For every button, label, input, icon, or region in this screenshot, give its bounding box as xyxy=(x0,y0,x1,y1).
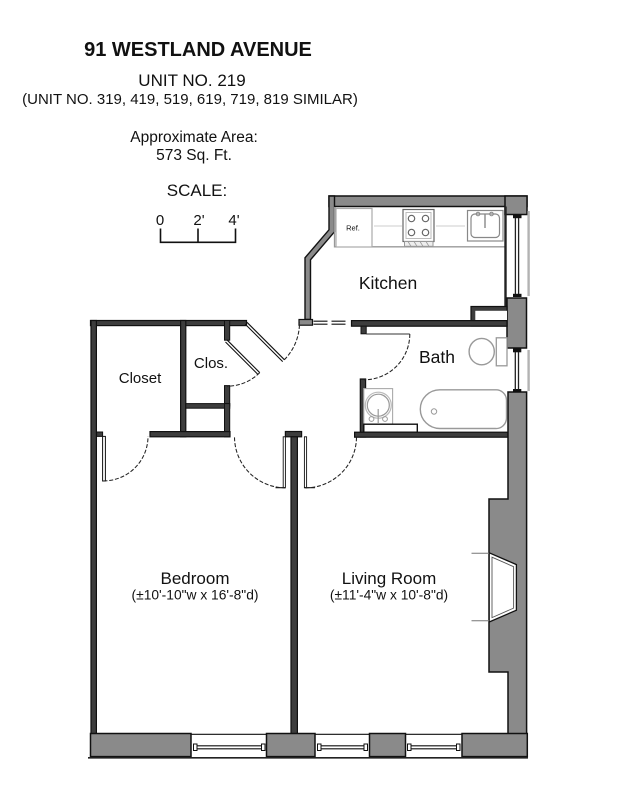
svg-text:91 WESTLAND AVENUE: 91 WESTLAND AVENUE xyxy=(84,39,312,61)
svg-text:UNIT NO. 219: UNIT NO. 219 xyxy=(138,71,245,90)
svg-text:Living Room: Living Room xyxy=(342,569,437,588)
svg-text:2': 2' xyxy=(193,212,204,229)
svg-text:(±11'-4"w x 10'-8"d): (±11'-4"w x 10'-8"d) xyxy=(330,588,448,603)
svg-text:Bath: Bath xyxy=(419,347,455,367)
svg-text:Bedroom: Bedroom xyxy=(161,569,230,588)
svg-text:Closet: Closet xyxy=(119,370,162,387)
svg-text:4': 4' xyxy=(228,212,239,229)
svg-text:Ref.: Ref. xyxy=(346,224,360,233)
svg-text:Clos.: Clos. xyxy=(194,355,228,372)
svg-text:(UNIT NO. 319, 419, 519, 619,: (UNIT NO. 319, 419, 519, 619, 719, 819 S… xyxy=(22,91,358,108)
svg-text:573 Sq. Ft.: 573 Sq. Ft. xyxy=(156,147,232,164)
svg-text:SCALE:: SCALE: xyxy=(167,181,227,200)
svg-text:(±10'-10"w x 16'-8"d): (±10'-10"w x 16'-8"d) xyxy=(132,588,259,603)
svg-text:Approximate Area:: Approximate Area: xyxy=(130,129,258,146)
svg-text:Kitchen: Kitchen xyxy=(359,273,417,293)
svg-text:0: 0 xyxy=(156,212,164,229)
